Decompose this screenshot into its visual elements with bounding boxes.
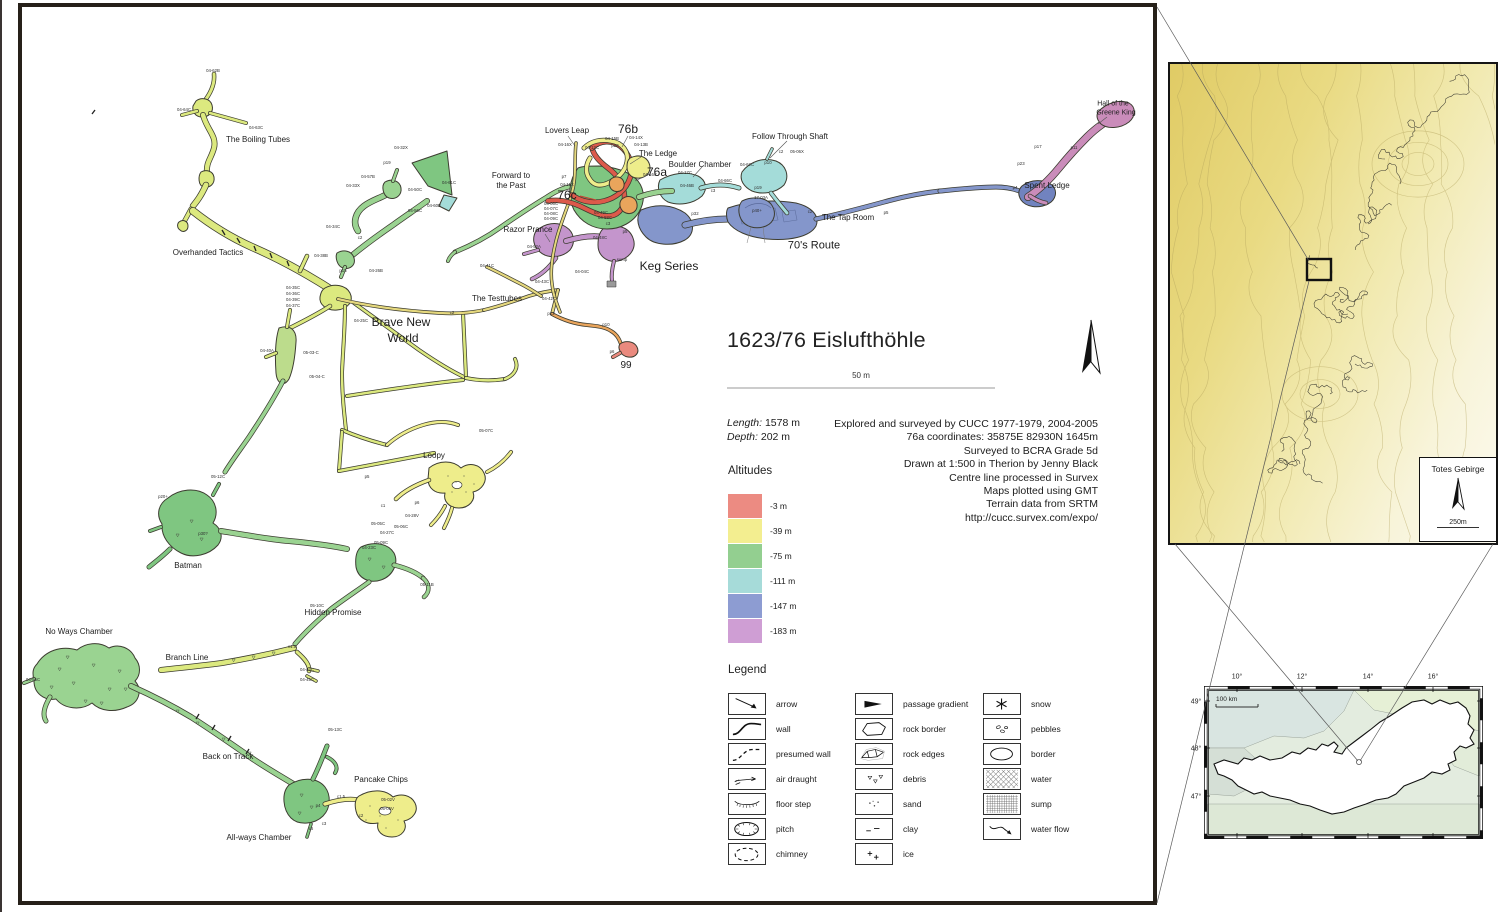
north-arrow-icon <box>1079 318 1103 376</box>
page-title: 1623/76 Eislufthöhle <box>727 328 926 353</box>
lat-tick-label: 48° <box>1191 746 1202 753</box>
legend-label: water <box>1031 775 1052 784</box>
legend-label: air draught <box>776 775 817 784</box>
legend-heading: Legend <box>728 664 1073 676</box>
air-draught-icon <box>728 768 766 790</box>
altitude-swatch <box>728 519 762 543</box>
sump-icon <box>983 793 1021 815</box>
altitudes-heading: Altitudes <box>728 465 858 477</box>
altitude-swatch <box>728 594 762 618</box>
page-edge-line <box>0 0 2 912</box>
overview-scale-bar <box>1437 527 1479 528</box>
legend-label: presumed wall <box>776 750 831 759</box>
snow-icon <box>983 693 1021 715</box>
altitude-swatch <box>728 569 762 593</box>
legend-label: pitch <box>776 825 794 834</box>
ice-icon <box>855 843 893 865</box>
altitude-label: -75 m <box>770 552 792 561</box>
wall-icon <box>728 718 766 740</box>
altitude-label: -183 m <box>770 627 796 636</box>
altitude-swatch <box>728 544 762 568</box>
lon-tick-label: 10° <box>1232 674 1243 681</box>
credit-line: Surveyed to BCRA Grade 5d <box>700 445 1098 458</box>
scale-bar-label: 50 m <box>830 371 892 380</box>
arrow-icon <box>728 693 766 715</box>
legend-label: clay <box>903 825 918 834</box>
credit-line: 76a coordinates: 35875E 82930N 1645m <box>700 431 1098 444</box>
passage-gradient-icon <box>855 693 893 715</box>
cave-survey-sheet: { "title_block": { "cave_number_title": … <box>0 0 1500 912</box>
altitude-label: -147 m <box>770 602 796 611</box>
lon-tick-label: 12° <box>1297 674 1308 681</box>
legend-label: sand <box>903 800 921 809</box>
symbol-legend: Legend arrowwallpresumed wallair draught… <box>728 664 1073 879</box>
austria-map-inset <box>1204 686 1483 839</box>
floor-step-icon <box>728 793 766 815</box>
sand-icon <box>855 793 893 815</box>
overview-scale-label: 250m <box>1420 519 1496 526</box>
legend-label: pebbles <box>1031 725 1061 734</box>
legend-label: passage gradient <box>903 700 968 709</box>
legend-label: wall <box>776 725 791 734</box>
rock-edges-icon <box>855 743 893 765</box>
legend-label: water flow <box>1031 825 1069 834</box>
water-flow-icon <box>983 818 1021 840</box>
legend-label: chimney <box>776 850 808 859</box>
altitude-label: -3 m <box>770 502 787 511</box>
altitude-legend: Altitudes -3 m-39 m-75 m-111 m-147 m-183… <box>728 465 858 650</box>
legend-label: snow <box>1031 700 1051 709</box>
inset-north-arrow-icon <box>1449 476 1467 512</box>
border-icon <box>983 743 1021 765</box>
altitude-label: -39 m <box>770 527 792 536</box>
water-icon <box>983 768 1021 790</box>
legend-label: rock edges <box>903 750 945 759</box>
pebbles-icon <box>983 718 1021 740</box>
rock-border-icon <box>855 718 893 740</box>
legend-label: rock border <box>903 725 946 734</box>
lat-tick-label: 47° <box>1191 794 1202 801</box>
debris-icon <box>855 768 893 790</box>
legend-label: border <box>1031 750 1056 759</box>
legend-label: floor step <box>776 800 811 809</box>
lat-tick-label: 49° <box>1191 699 1202 706</box>
austria-scale-label: 100 km <box>1216 696 1237 703</box>
legend-label: ice <box>903 850 914 859</box>
overview-name-box: Totes Gebirge 250m <box>1419 457 1497 542</box>
clay-icon <box>855 818 893 840</box>
legend-label: sump <box>1031 800 1052 809</box>
altitude-label: -111 m <box>770 577 795 586</box>
lon-tick-label: 14° <box>1363 674 1374 681</box>
presumed-wall-icon <box>728 743 766 765</box>
pitch-icon <box>728 818 766 840</box>
main-map-extent-box <box>1307 259 1331 280</box>
credit-line: Explored and surveyed by CUCC 1977-1979,… <box>700 418 1098 431</box>
region-name: Totes Gebirge <box>1420 464 1496 474</box>
legend-label: arrow <box>776 700 797 709</box>
chimney-icon <box>728 843 766 865</box>
altitude-swatch <box>728 494 762 518</box>
legend-label: debris <box>903 775 926 784</box>
altitude-swatch <box>728 619 762 643</box>
lon-tick-label: 16° <box>1428 674 1439 681</box>
